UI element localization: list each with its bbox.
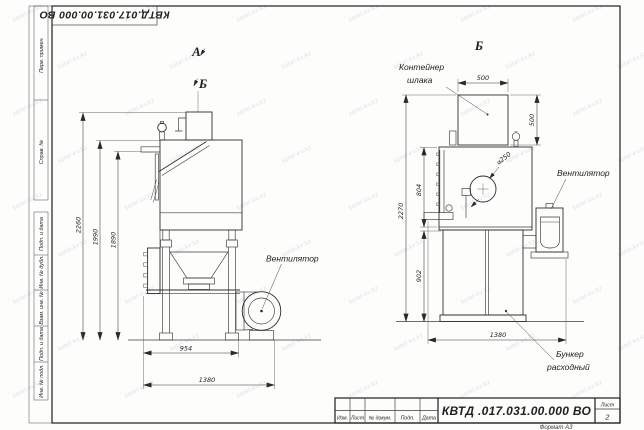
- dim-container-height: 500: [528, 114, 536, 126]
- dim-bunker-height: 902: [415, 270, 423, 282]
- margin-label-podp-data-1: Подп. и дата: [39, 217, 45, 251]
- top-stamp-doc-number: КВТД.017.031.00.000 ВО: [39, 9, 169, 21]
- margin-label-vzam-inv: Взам. инв. №: [39, 291, 45, 325]
- tb-header-data: Дата: [421, 416, 436, 422]
- drawing-sheet: kotel-kv.kzkotel-kv.kzkotel-kv.kzkotel-k…: [0, 0, 644, 430]
- dim-container-width: 500: [477, 74, 489, 82]
- tb-header-izm: Изм.: [337, 416, 348, 422]
- margin-label-sprav: Справ. №: [39, 140, 45, 165]
- tb-sheet-number: 2: [605, 415, 610, 422]
- margin-label-perv-primen: Перв. примен.: [39, 37, 45, 73]
- bunker-label-line2: расходный: [546, 362, 590, 372]
- dim-width-total-right: 1380: [490, 331, 507, 339]
- tb-header-podp: Подп.: [401, 416, 415, 422]
- fan-label-right: Вентилятор: [557, 168, 610, 178]
- view-label-b-right: Б: [474, 38, 483, 53]
- dim-body-height-right: 804: [415, 184, 423, 196]
- dim-total-height-left: 2260: [74, 217, 82, 234]
- margin-label-podp-data-2: Подп. и дата: [39, 327, 45, 361]
- dim-width-inner-left: 954: [180, 345, 192, 353]
- tb-doc-number: КВТД .017.031.00.000 ВО: [442, 404, 592, 418]
- tb-sheet-label: Лист: [600, 403, 615, 409]
- tb-header-list: Лист: [350, 416, 365, 422]
- tb-header-docnum: № докум.: [369, 416, 392, 422]
- dim-body-height-left: 1890: [109, 232, 117, 249]
- bunker-label-line1: Бункер: [556, 349, 584, 359]
- margin-label-inv-podl: Инв. № подл.: [39, 364, 45, 397]
- view-label-a: А: [191, 44, 201, 59]
- view-label-b-left: Б: [198, 76, 207, 91]
- fan-label-left: Вентилятор: [266, 254, 319, 264]
- margin-label-inv-dubl: Инв. № дубл.: [39, 255, 45, 288]
- slag-container-label-line1: Контейнер: [399, 62, 444, 72]
- format-label: Формат А3: [540, 425, 573, 430]
- dim-total-height-right: 2270: [397, 203, 405, 220]
- dim-mid-height-left: 1990: [91, 229, 99, 246]
- dim-width-total-left: 1380: [199, 376, 216, 384]
- slag-container-label-line2: шлака: [407, 75, 433, 85]
